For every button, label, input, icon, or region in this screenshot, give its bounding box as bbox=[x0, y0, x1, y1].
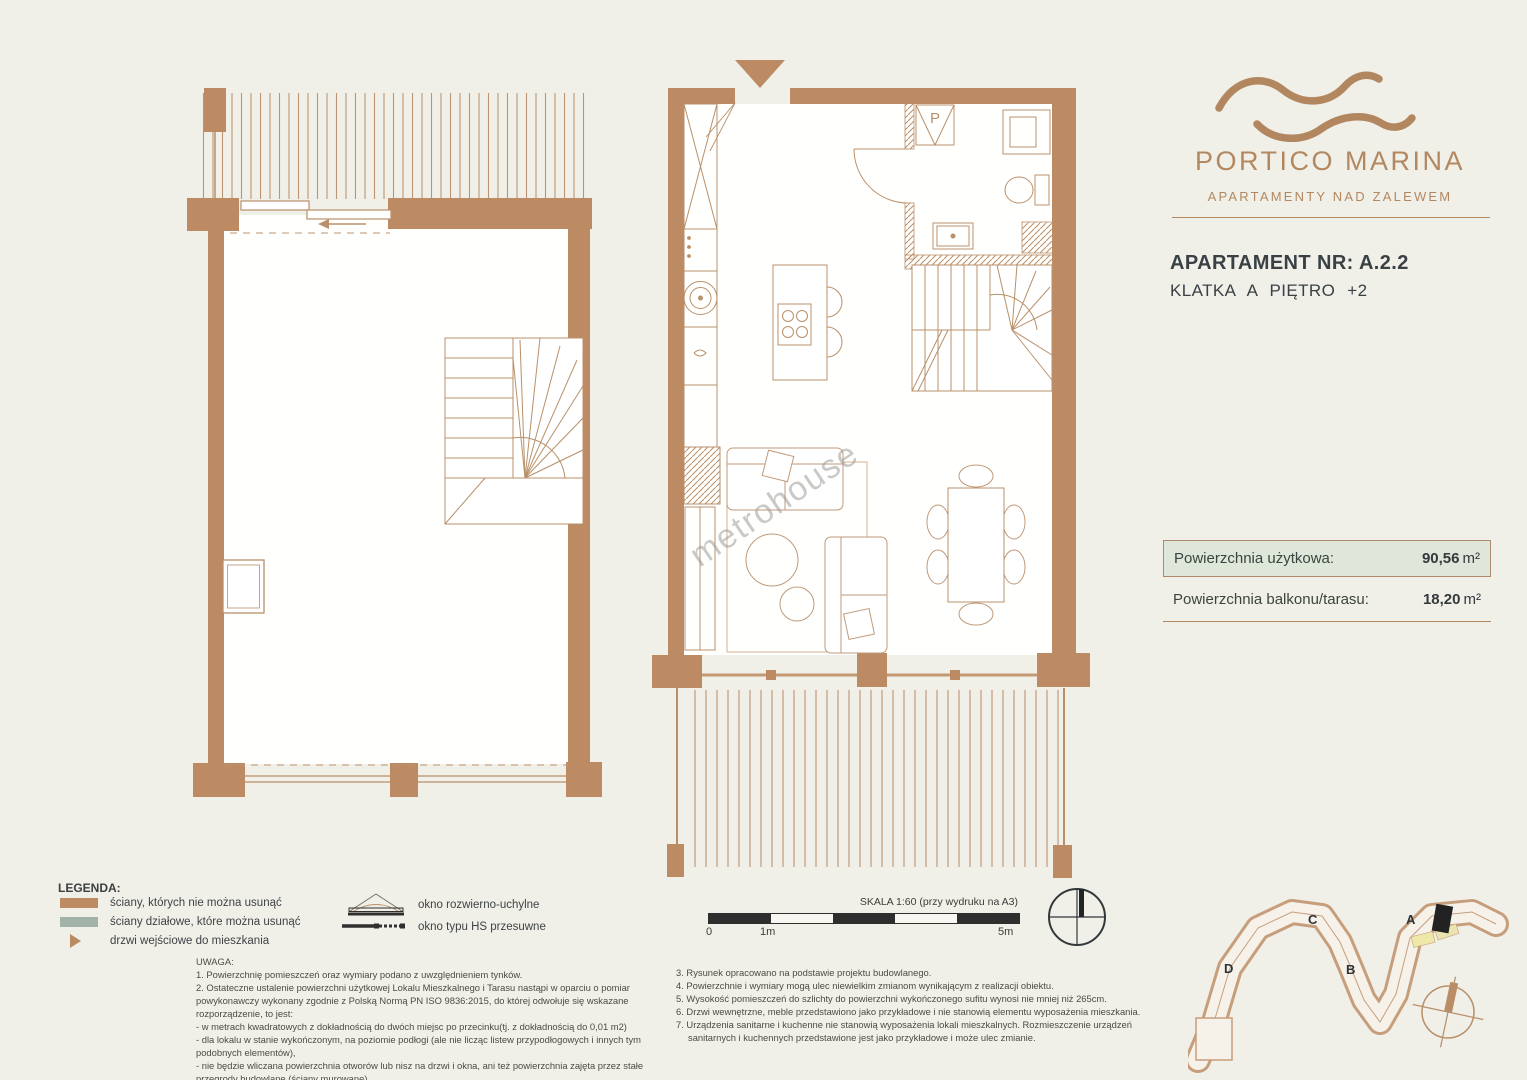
legend-item-label: ściany działowe, które można usunąć bbox=[110, 916, 301, 928]
staircase-upper-floor bbox=[445, 338, 583, 524]
legend-item-walls: ściany, których nie można usunąć bbox=[60, 897, 282, 909]
legend-item-entry-door: drzwi wejściowe do mieszkania bbox=[60, 934, 269, 948]
shower-area bbox=[1022, 222, 1053, 253]
floorplan-sheet: P bbox=[0, 0, 1527, 1080]
apartment-number: APARTAMENT NR: A.2.2 bbox=[1170, 252, 1409, 275]
legend-item-label: ściany, których nie można usunąć bbox=[110, 897, 282, 909]
note-line: - w metrach kwadratowych z dokładnością … bbox=[196, 1020, 656, 1033]
left-floor-plan bbox=[60, 85, 640, 810]
legend-title: LEGENDA: bbox=[58, 881, 121, 895]
dining-chair bbox=[1003, 550, 1025, 584]
note-line: 3. Rysunek opracowano na podstawie proje… bbox=[676, 966, 1148, 979]
apartment-location: KLATKA A PIĘTRO +2 bbox=[1170, 281, 1368, 301]
entrance-arrow bbox=[735, 60, 785, 88]
notes-right-column: 3. Rysunek opracowano na podstawie proje… bbox=[676, 966, 1148, 1044]
legend-item-partitions: ściany działowe, które można usunąć bbox=[60, 916, 301, 928]
usable-area-row: Powierzchnia użytkowa: 90,56 m² bbox=[1163, 540, 1491, 577]
site-key-map: D C B A bbox=[1188, 872, 1524, 1078]
scale-tick-1m: 1m bbox=[760, 926, 775, 938]
usable-area-value: 90,56 m² bbox=[1422, 550, 1480, 567]
dining-chair bbox=[1003, 505, 1025, 539]
scale-tick-0: 0 bbox=[706, 926, 712, 938]
washer-label: P bbox=[930, 110, 940, 127]
notes-title: UWAGA: bbox=[196, 955, 656, 968]
partition-swatch-icon bbox=[60, 917, 98, 927]
legend-item-label: drzwi wejściowe do mieszkania bbox=[110, 935, 269, 947]
usable-area-unit: m² bbox=[1463, 550, 1481, 567]
usable-area-number: 90,56 bbox=[1422, 550, 1460, 567]
note-line: - dla lokalu w stanie wykończonym, na po… bbox=[196, 1033, 656, 1059]
note-line: 7. Urządzenia sanitarne i kuchenne nie s… bbox=[676, 1018, 1148, 1044]
entry-door-triangle-icon bbox=[70, 934, 81, 948]
note-line: 2. Ostateczne ustalenie powierzchni użyt… bbox=[196, 981, 656, 1020]
dining-chair bbox=[927, 505, 949, 539]
balcony-area-unit: m² bbox=[1464, 591, 1482, 608]
dining-chair bbox=[959, 465, 993, 487]
hs-window-label: okno typu HS przesuwne bbox=[418, 921, 546, 933]
dining-chair bbox=[959, 603, 993, 625]
main-terrace bbox=[667, 688, 1072, 878]
wing-label-a: A bbox=[1406, 912, 1416, 927]
sofa-pillow bbox=[844, 609, 875, 640]
hs-window-icon bbox=[340, 920, 408, 932]
balcony-area-label: Powierzchnia balkonu/tarasu: bbox=[1173, 591, 1369, 608]
cooktop bbox=[778, 304, 811, 345]
site-compass-icon bbox=[1405, 969, 1490, 1054]
dining-chair bbox=[927, 550, 949, 584]
brand-divider bbox=[1172, 217, 1490, 218]
usable-area-label: Powierzchnia użytkowa: bbox=[1174, 550, 1334, 567]
brand-tagline: APARTAMENTY NAD ZALEWEM bbox=[1165, 189, 1495, 204]
wall-niche bbox=[223, 560, 264, 613]
balcony-area-number: 18,20 bbox=[1423, 591, 1461, 608]
brand-logo-waves-icon bbox=[1205, 48, 1425, 143]
area-table-divider bbox=[1163, 621, 1491, 622]
note-line: 6. Drzwi wewnętrzne, meble przedstawiono… bbox=[676, 1005, 1148, 1018]
scale-label: SKALA 1:60 (przy wydruku na A3) bbox=[718, 896, 1018, 908]
notes-left-column: UWAGA: 1. Powierzchnię pomieszczeń oraz … bbox=[196, 955, 656, 1080]
note-line: 4. Powierzchnie i wymiary mogą ulec niew… bbox=[676, 979, 1148, 992]
staircase-main-floor bbox=[912, 265, 1052, 391]
tilt-window-icon bbox=[346, 891, 408, 917]
dining-table bbox=[948, 488, 1004, 602]
wing-label-d: D bbox=[1224, 961, 1233, 976]
scale-tick-5m: 5m bbox=[998, 926, 1013, 938]
wing-label-c: C bbox=[1308, 912, 1318, 927]
north-indicator-icon bbox=[1046, 886, 1108, 948]
note-line: - nie będzie wliczana powierzchnia otwor… bbox=[196, 1059, 656, 1080]
partition-unit bbox=[684, 447, 720, 504]
upper-terrace-deck bbox=[195, 93, 592, 199]
tilt-window-label: okno rozwierno-uchylne bbox=[418, 899, 539, 911]
note-line: 1. Powierzchnię pomieszczeń oraz wymiary… bbox=[196, 968, 656, 981]
balcony-area-row: Powierzchnia balkonu/tarasu: 18,20 m² bbox=[1163, 584, 1491, 614]
wing-label-b: B bbox=[1346, 962, 1355, 977]
brand-name: PORTICO MARINA bbox=[1165, 146, 1495, 177]
wall-swatch-icon bbox=[60, 898, 98, 908]
balcony-area-value: 18,20 m² bbox=[1423, 591, 1481, 608]
main-floor-plan: P bbox=[650, 55, 1120, 885]
scale-bar bbox=[708, 913, 1020, 924]
note-line: 5. Wysokość pomieszczeń do szlichty do p… bbox=[676, 992, 1148, 1005]
